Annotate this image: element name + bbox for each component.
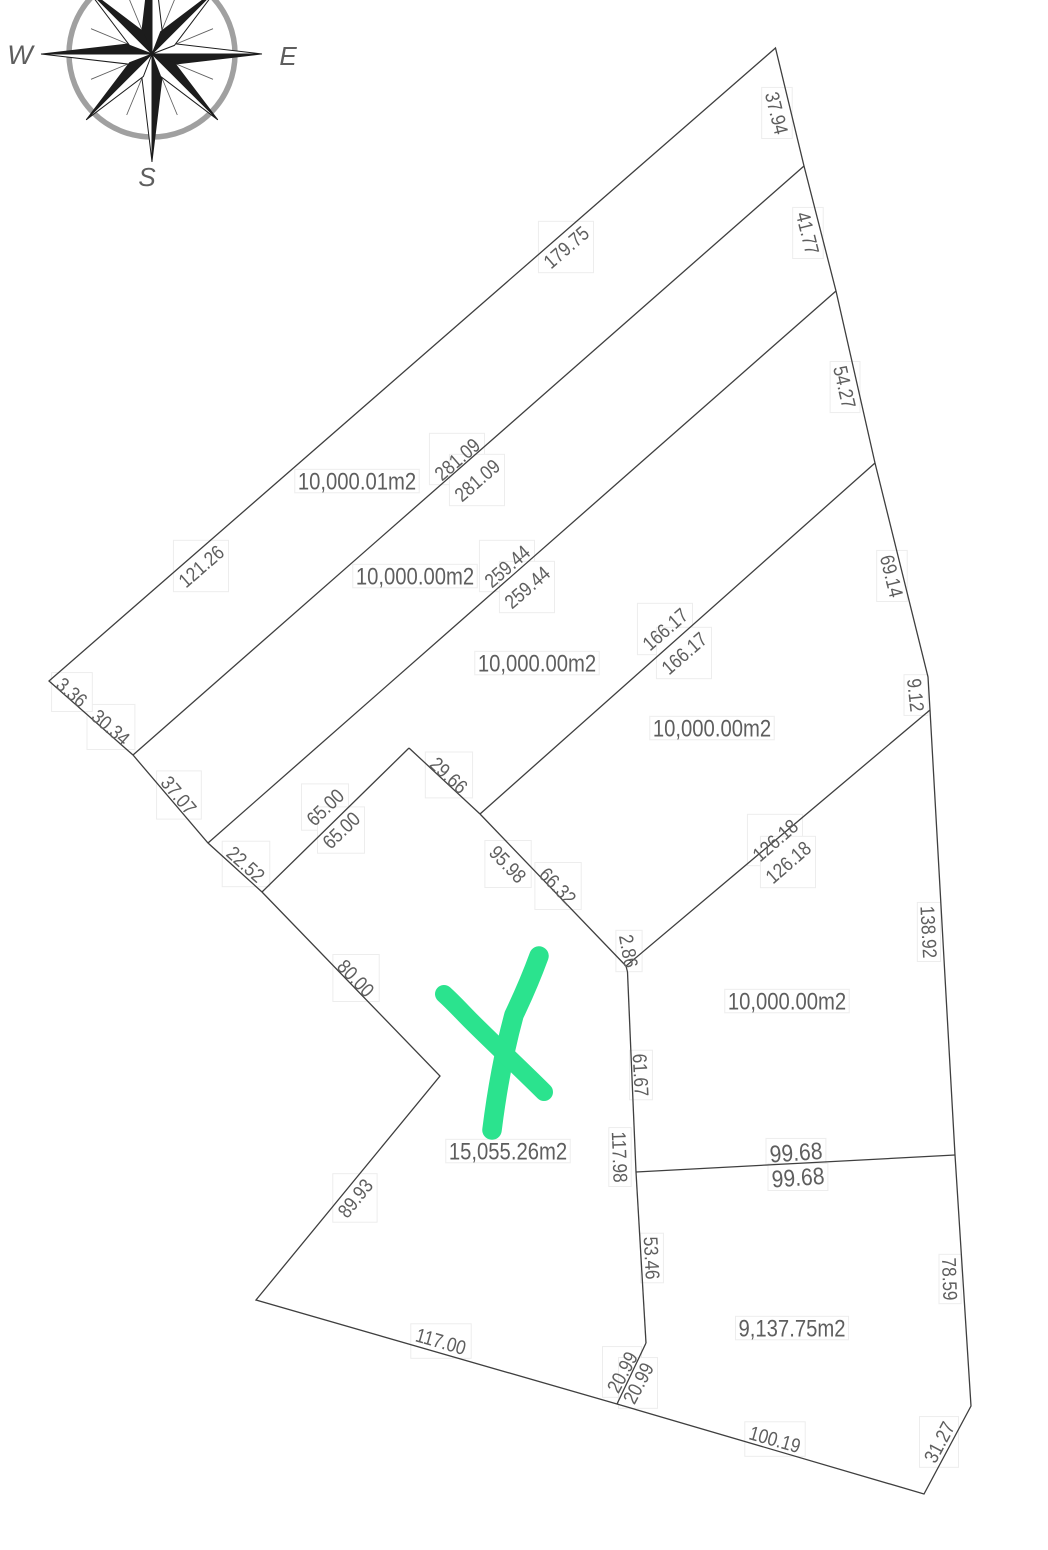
svg-text:117.98: 117.98 [608, 1131, 632, 1183]
svg-text:10,000.00m2: 10,000.00m2 [728, 988, 846, 1015]
svg-text:53.46: 53.46 [639, 1236, 664, 1280]
svg-text:9,137.75m2: 9,137.75m2 [738, 1315, 845, 1342]
svg-text:10,000.00m2: 10,000.00m2 [653, 715, 771, 742]
svg-text:10,000.00m2: 10,000.00m2 [356, 563, 474, 590]
svg-text:10,000.00m2: 10,000.00m2 [478, 650, 596, 677]
svg-text:61.67: 61.67 [628, 1053, 653, 1097]
svg-text:S: S [138, 162, 156, 192]
svg-text:10,000.01m2: 10,000.01m2 [298, 468, 416, 495]
svg-text:15,055.26m2: 15,055.26m2 [449, 1138, 567, 1165]
svg-text:78.59: 78.59 [938, 1257, 962, 1301]
svg-text:E: E [279, 41, 297, 71]
svg-text:138.92: 138.92 [916, 905, 941, 958]
svg-text:9.12: 9.12 [903, 677, 929, 713]
svg-text:99.68: 99.68 [771, 1163, 826, 1193]
svg-text:W: W [7, 40, 35, 70]
